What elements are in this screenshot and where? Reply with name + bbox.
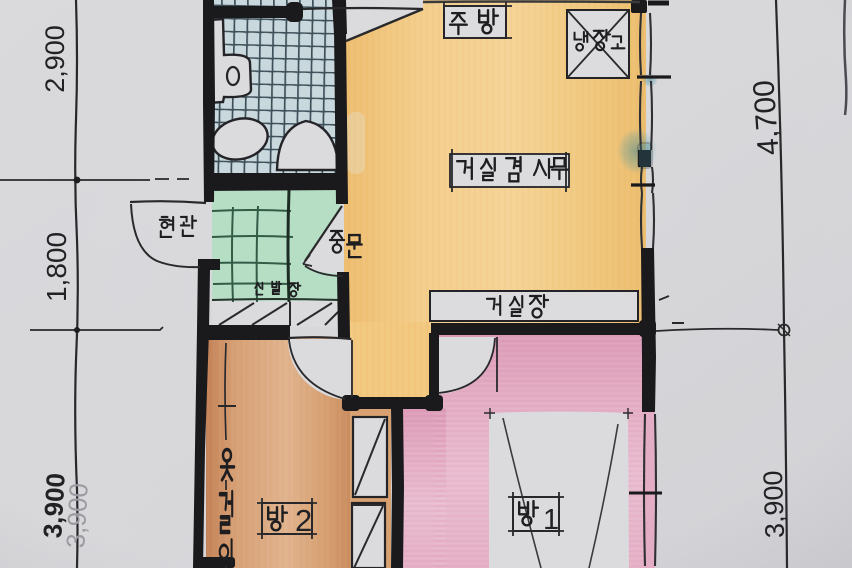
svg-text:3,900: 3,900 [758,470,790,539]
svg-text:2: 2 [295,503,312,538]
svg-text:2,900: 2,900 [40,25,70,93]
svg-text:3,900: 3,900 [60,482,93,549]
svg-text:1,800: 1,800 [41,232,72,302]
svg-text:1: 1 [543,504,559,536]
svg-text:4,700: 4,700 [747,79,785,156]
